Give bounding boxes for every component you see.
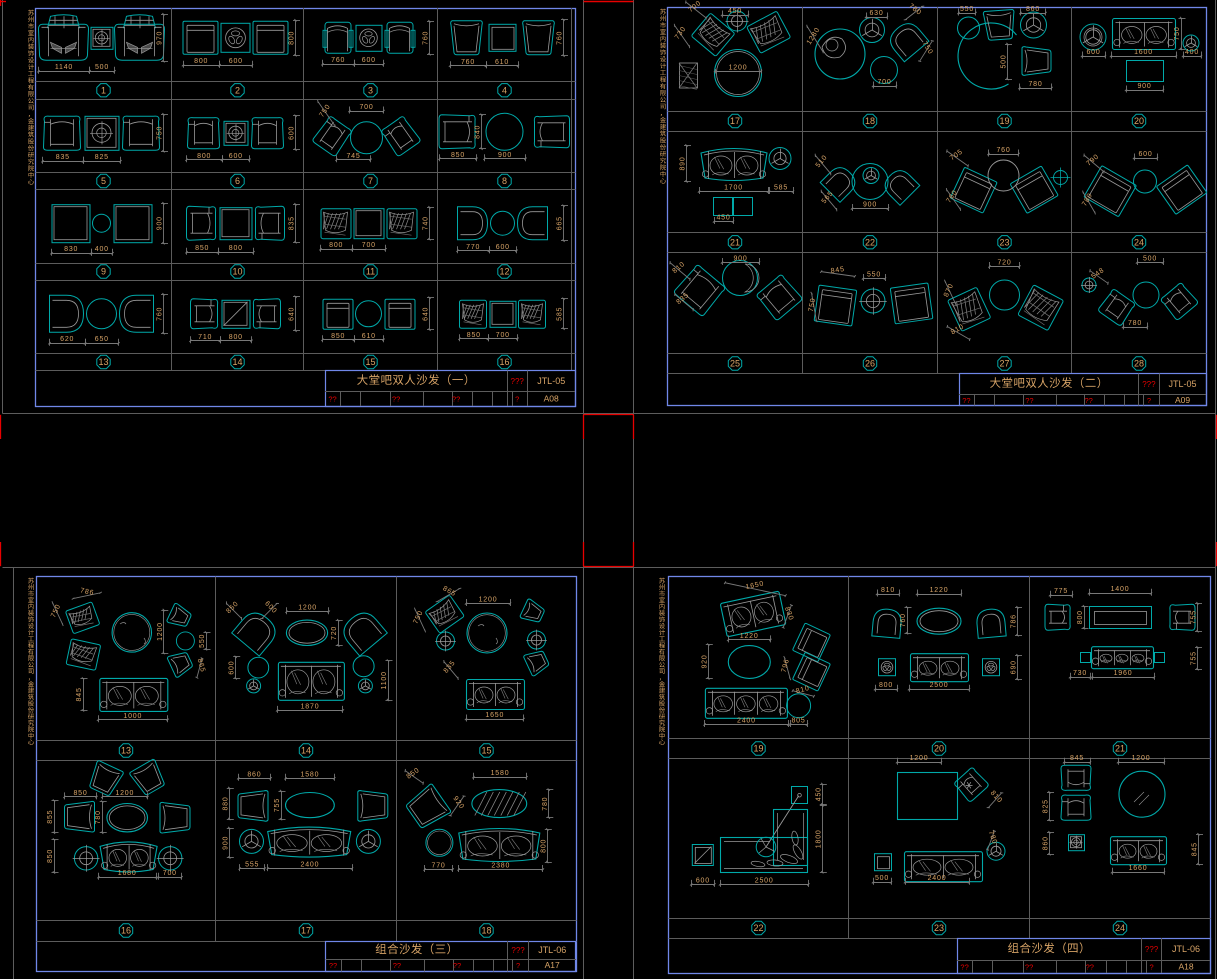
svg-text:22: 22 [865,237,875,247]
svg-text:860: 860 [1026,6,1040,13]
svg-text:20: 20 [934,744,944,754]
svg-text:920: 920 [701,654,708,668]
svg-text:550: 550 [960,6,974,13]
svg-text:835: 835 [56,154,70,161]
svg-text:JTL-05: JTL-05 [537,376,565,386]
svg-text:710: 710 [198,334,212,341]
svg-text:3: 3 [368,86,373,96]
svg-text:2400: 2400 [737,718,756,725]
svg-text:A09: A09 [1175,395,1190,405]
svg-text:700: 700 [362,242,376,249]
svg-text:23: 23 [934,923,944,933]
svg-text:20: 20 [1134,116,1144,126]
svg-text:450: 450 [815,787,822,801]
svg-text:800: 800 [540,839,547,853]
svg-text:12: 12 [499,267,509,277]
svg-text:13: 13 [121,746,131,756]
svg-text:760: 760 [331,57,345,64]
svg-text:???: ??? [511,946,525,955]
svg-text:550: 550 [867,272,881,279]
svg-text:800: 800 [329,242,343,249]
svg-text:600: 600 [229,661,236,675]
svg-text:760: 760 [996,147,1010,154]
svg-text:585: 585 [557,307,564,321]
svg-text:755: 755 [274,798,281,812]
svg-text:2500: 2500 [930,682,949,689]
svg-text:24: 24 [1115,923,1125,933]
svg-text:A08: A08 [544,394,559,404]
svg-text:900: 900 [863,202,877,209]
svg-text:1140: 1140 [55,64,73,71]
svg-text:1000: 1000 [123,713,142,720]
svg-text:15: 15 [481,746,491,756]
svg-text:15: 15 [365,357,375,367]
svg-text:8: 8 [502,176,507,186]
svg-text:1400: 1400 [1111,586,1130,593]
svg-text:1580: 1580 [301,771,320,778]
svg-text:610: 610 [362,333,376,340]
svg-text:800: 800 [197,153,211,160]
svg-text:19: 19 [999,116,1009,126]
svg-text:700: 700 [163,870,177,877]
svg-text:600: 600 [289,126,296,140]
svg-text:786: 786 [1011,614,1018,628]
svg-text:640: 640 [289,307,296,321]
svg-text:825: 825 [1043,799,1050,813]
svg-text:1650: 1650 [485,712,504,719]
svg-text:1200: 1200 [115,790,134,797]
svg-text:28: 28 [1134,359,1144,369]
svg-text:1800: 1800 [815,829,822,848]
svg-text:770: 770 [466,244,480,251]
svg-text:720: 720 [997,260,1011,267]
svg-text:22: 22 [753,923,763,933]
svg-text:755: 755 [1191,651,1198,665]
svg-text:745: 745 [346,153,360,160]
svg-text:1200: 1200 [729,65,748,72]
svg-text:800: 800 [229,245,243,252]
svg-text:1200: 1200 [157,622,164,641]
svg-text:900: 900 [157,216,164,230]
svg-text:?: ? [1147,396,1151,405]
svg-text:??: ?? [1025,963,1033,972]
svg-text:500: 500 [95,64,109,71]
svg-text:760: 760 [423,31,430,45]
svg-text:??: ?? [392,395,400,404]
svg-text:JTL-06: JTL-06 [1172,944,1200,954]
svg-text:600: 600 [1086,49,1100,56]
svg-text:25: 25 [730,359,740,369]
svg-text:805: 805 [791,718,805,725]
svg-text:600: 600 [1138,151,1152,158]
svg-text:23: 23 [999,237,1009,247]
svg-text:860: 860 [1043,836,1050,850]
svg-text:??: ?? [452,395,460,404]
svg-text:620: 620 [60,336,74,343]
svg-text:10: 10 [232,267,242,277]
svg-text:780: 780 [542,797,549,811]
svg-text:19: 19 [753,744,763,754]
svg-text:???: ??? [511,377,525,386]
svg-text:5: 5 [101,176,106,186]
svg-text:2380: 2380 [491,863,510,870]
svg-text:2400: 2400 [928,875,947,882]
svg-text:600: 600 [229,153,243,160]
svg-text:4: 4 [502,86,507,96]
svg-text:??: ?? [329,961,337,970]
svg-text:???: ??? [1142,380,1156,389]
svg-text:755: 755 [1191,610,1198,624]
svg-text:6: 6 [235,176,240,186]
svg-text:1700: 1700 [724,185,743,192]
svg-text:760: 760 [557,31,564,45]
svg-text:585: 585 [774,185,788,192]
svg-text:21: 21 [730,237,740,247]
svg-text:600: 600 [229,58,243,65]
svg-text:16: 16 [499,357,509,367]
svg-text:1600: 1600 [1134,49,1153,56]
svg-text:730: 730 [1073,670,1087,677]
svg-text:1200: 1200 [479,597,498,604]
svg-text:665: 665 [557,216,564,230]
svg-text:1100: 1100 [381,671,388,689]
svg-text:500: 500 [1143,256,1157,263]
svg-text:770: 770 [432,863,446,870]
svg-text:690: 690 [1011,660,1018,674]
svg-text:JTL-06: JTL-06 [538,945,566,955]
svg-text:?: ? [1150,963,1154,972]
svg-text:760: 760 [900,613,907,627]
svg-text:780: 780 [1128,320,1142,327]
svg-text:600: 600 [496,244,510,251]
svg-text:890: 890 [680,156,687,170]
svg-text:450: 450 [716,215,730,222]
svg-text:1: 1 [101,86,106,96]
svg-text:JTL-05: JTL-05 [1168,379,1196,389]
svg-text:845: 845 [1192,842,1199,856]
svg-text:850: 850 [451,152,465,159]
svg-text:17: 17 [301,926,311,936]
svg-text:???: ??? [1145,945,1159,954]
svg-text:970: 970 [157,31,164,45]
svg-text:2400: 2400 [301,862,320,869]
svg-text:750: 750 [1174,26,1181,40]
svg-text:800: 800 [194,58,208,65]
svg-text:27: 27 [999,359,1009,369]
svg-text:??: ?? [453,961,461,970]
svg-text:900: 900 [733,256,747,263]
svg-text:800: 800 [289,31,296,45]
svg-text:450: 450 [728,8,742,15]
svg-text:2: 2 [235,86,240,96]
svg-text:800: 800 [229,334,243,341]
svg-text:11: 11 [366,267,375,277]
svg-text:850: 850 [331,333,345,340]
svg-text:700: 700 [496,332,510,339]
svg-text:700: 700 [877,79,891,86]
svg-text:1220: 1220 [930,587,949,594]
svg-text:1200: 1200 [1132,755,1151,762]
svg-text:17: 17 [730,116,740,126]
svg-text:9: 9 [101,267,106,277]
svg-text:900: 900 [498,152,512,159]
svg-text:??: ?? [960,963,968,972]
svg-text:550: 550 [199,634,206,648]
svg-text:610: 610 [495,59,509,66]
svg-text:760: 760 [157,307,164,321]
svg-text:400: 400 [95,246,109,253]
svg-text:860: 860 [247,771,261,778]
svg-text:845: 845 [76,687,83,701]
svg-text:855: 855 [47,810,54,824]
svg-text:750: 750 [157,126,164,140]
svg-text:850: 850 [73,790,87,797]
svg-text:A17: A17 [545,960,560,970]
svg-text:900: 900 [1137,83,1151,90]
svg-text:21: 21 [1115,744,1125,754]
svg-text:800: 800 [879,682,893,689]
svg-text:7: 7 [368,176,373,186]
svg-text:18: 18 [865,116,875,126]
svg-text:??: ?? [1025,396,1033,405]
svg-text:830: 830 [64,246,78,253]
svg-text:??: ?? [1085,396,1093,405]
svg-text:1200: 1200 [910,755,929,762]
svg-text:800: 800 [1077,610,1084,624]
svg-text:720: 720 [331,626,338,640]
svg-text:??: ?? [328,395,336,404]
svg-text:880: 880 [222,796,229,810]
svg-text:24: 24 [1134,237,1144,247]
svg-text:?: ? [516,961,520,970]
svg-text:2500: 2500 [755,877,774,884]
svg-text:1580: 1580 [491,770,510,777]
svg-text:18: 18 [481,926,491,936]
svg-text:840: 840 [475,125,482,139]
svg-text:1200: 1200 [298,605,317,612]
svg-text:26: 26 [865,359,875,369]
svg-text:1660: 1660 [1129,865,1148,872]
svg-text:??: ?? [962,396,970,405]
svg-text:845: 845 [1070,755,1084,762]
svg-text:825: 825 [95,154,109,161]
svg-text:835: 835 [289,216,296,230]
svg-text:500: 500 [875,875,889,882]
svg-text:810: 810 [881,587,895,594]
svg-text:16: 16 [121,926,131,936]
svg-text:1220: 1220 [740,633,759,640]
svg-text:760: 760 [461,59,475,66]
svg-text:900: 900 [222,836,229,850]
svg-text:650: 650 [95,336,109,343]
svg-text:630: 630 [869,10,883,17]
svg-text:??: ?? [1086,963,1094,972]
svg-text:600: 600 [696,877,710,884]
svg-text:1960: 1960 [1114,670,1133,677]
svg-text:850: 850 [47,849,54,863]
svg-text:A18: A18 [1178,962,1193,972]
svg-text:850: 850 [467,332,481,339]
svg-text:500: 500 [1001,54,1008,68]
svg-text:640: 640 [423,307,430,321]
svg-text:780: 780 [95,810,102,824]
svg-text:775: 775 [1054,588,1068,595]
svg-text:14: 14 [232,357,242,367]
svg-text:?: ? [515,395,519,404]
svg-text:780: 780 [1028,81,1042,88]
svg-text:13: 13 [98,357,108,367]
svg-text:??: ?? [393,961,401,970]
svg-text:1870: 1870 [301,703,320,710]
svg-text:1680: 1680 [118,870,137,877]
svg-text:850: 850 [195,245,209,252]
svg-text:14: 14 [301,746,311,756]
svg-text:400: 400 [1185,49,1199,56]
svg-text:600: 600 [362,57,376,64]
svg-text:740: 740 [423,216,430,230]
svg-text:555: 555 [245,862,259,869]
svg-text:700: 700 [359,104,373,111]
